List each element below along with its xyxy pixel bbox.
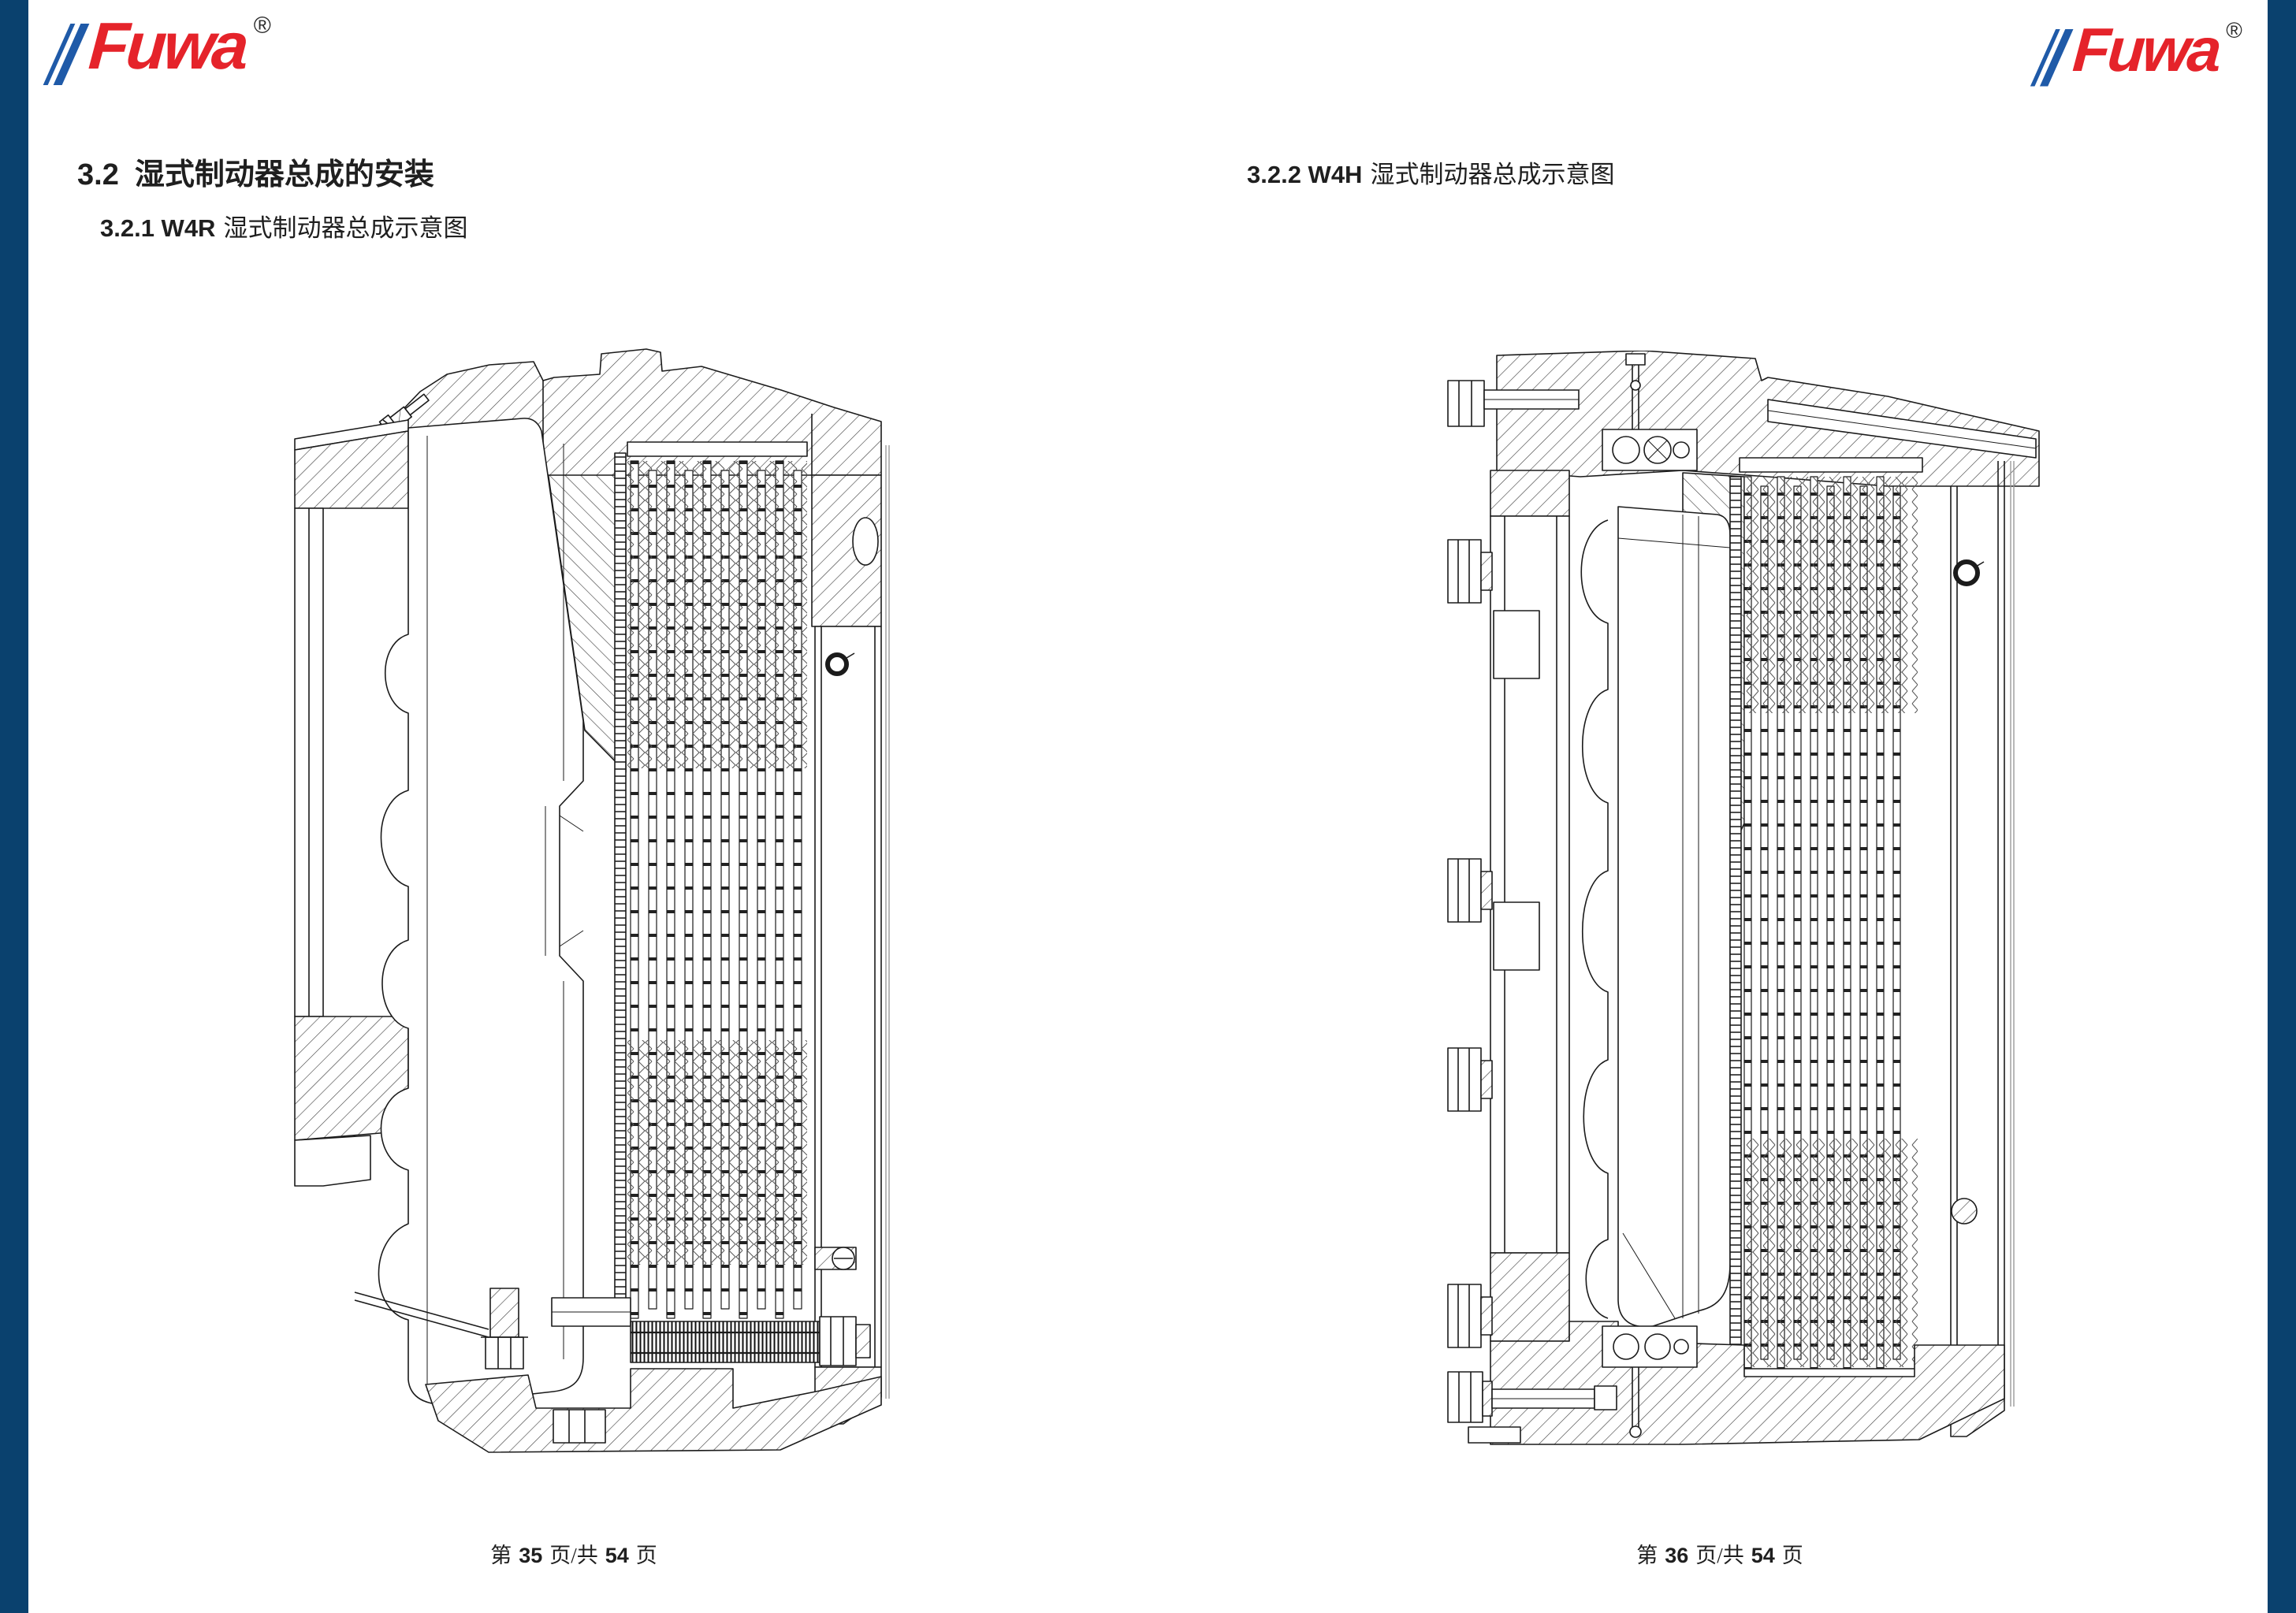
w4h-cross-section-figure (1446, 351, 2053, 1450)
section-title: 湿式制动器总成的安装 (135, 158, 434, 191)
logo-stripes-icon (57, 24, 81, 85)
section-number: 3.2 (77, 158, 119, 191)
page-footer-right: 第36页/共54页 (1546, 1538, 1893, 1569)
logo-wordmark: Fuwa (2071, 19, 2220, 80)
total-pages: 54 (1751, 1544, 1775, 1567)
w4r-cross-section-figure (292, 343, 891, 1454)
page-number: 35 (519, 1544, 542, 1567)
left-edge-bar (0, 0, 28, 1613)
w4h-brake-assembly-drawing (1446, 351, 2053, 1450)
right-edge-bar (2268, 0, 2296, 1613)
fuwa-logo: Fuwa ® (57, 13, 271, 85)
subsection-heading-w4h: 3.2.2 W4H湿式制动器总成示意图 (1247, 154, 1614, 190)
registered-trademark-icon: ® (254, 14, 271, 38)
logo-stripes-icon (2043, 29, 2066, 87)
total-pages: 54 (605, 1544, 629, 1567)
logo-wordmark: Fuwa (87, 13, 248, 79)
registered-trademark-icon: ® (2226, 20, 2242, 43)
page-number: 36 (1665, 1544, 1688, 1567)
manual-spread-page: Fuwa ® Fuwa ® 3.2湿式制动器总成的安装 3.2.1 W4R湿式制… (0, 0, 2296, 1613)
subsection-heading-w4r: 3.2.1 W4R湿式制动器总成示意图 (100, 208, 467, 243)
section-heading: 3.2湿式制动器总成的安装 (77, 150, 434, 193)
page-footer-left: 第35页/共54页 (400, 1538, 747, 1569)
w4r-brake-assembly-drawing (292, 343, 891, 1454)
fuwa-logo: Fuwa ® (2043, 19, 2242, 87)
